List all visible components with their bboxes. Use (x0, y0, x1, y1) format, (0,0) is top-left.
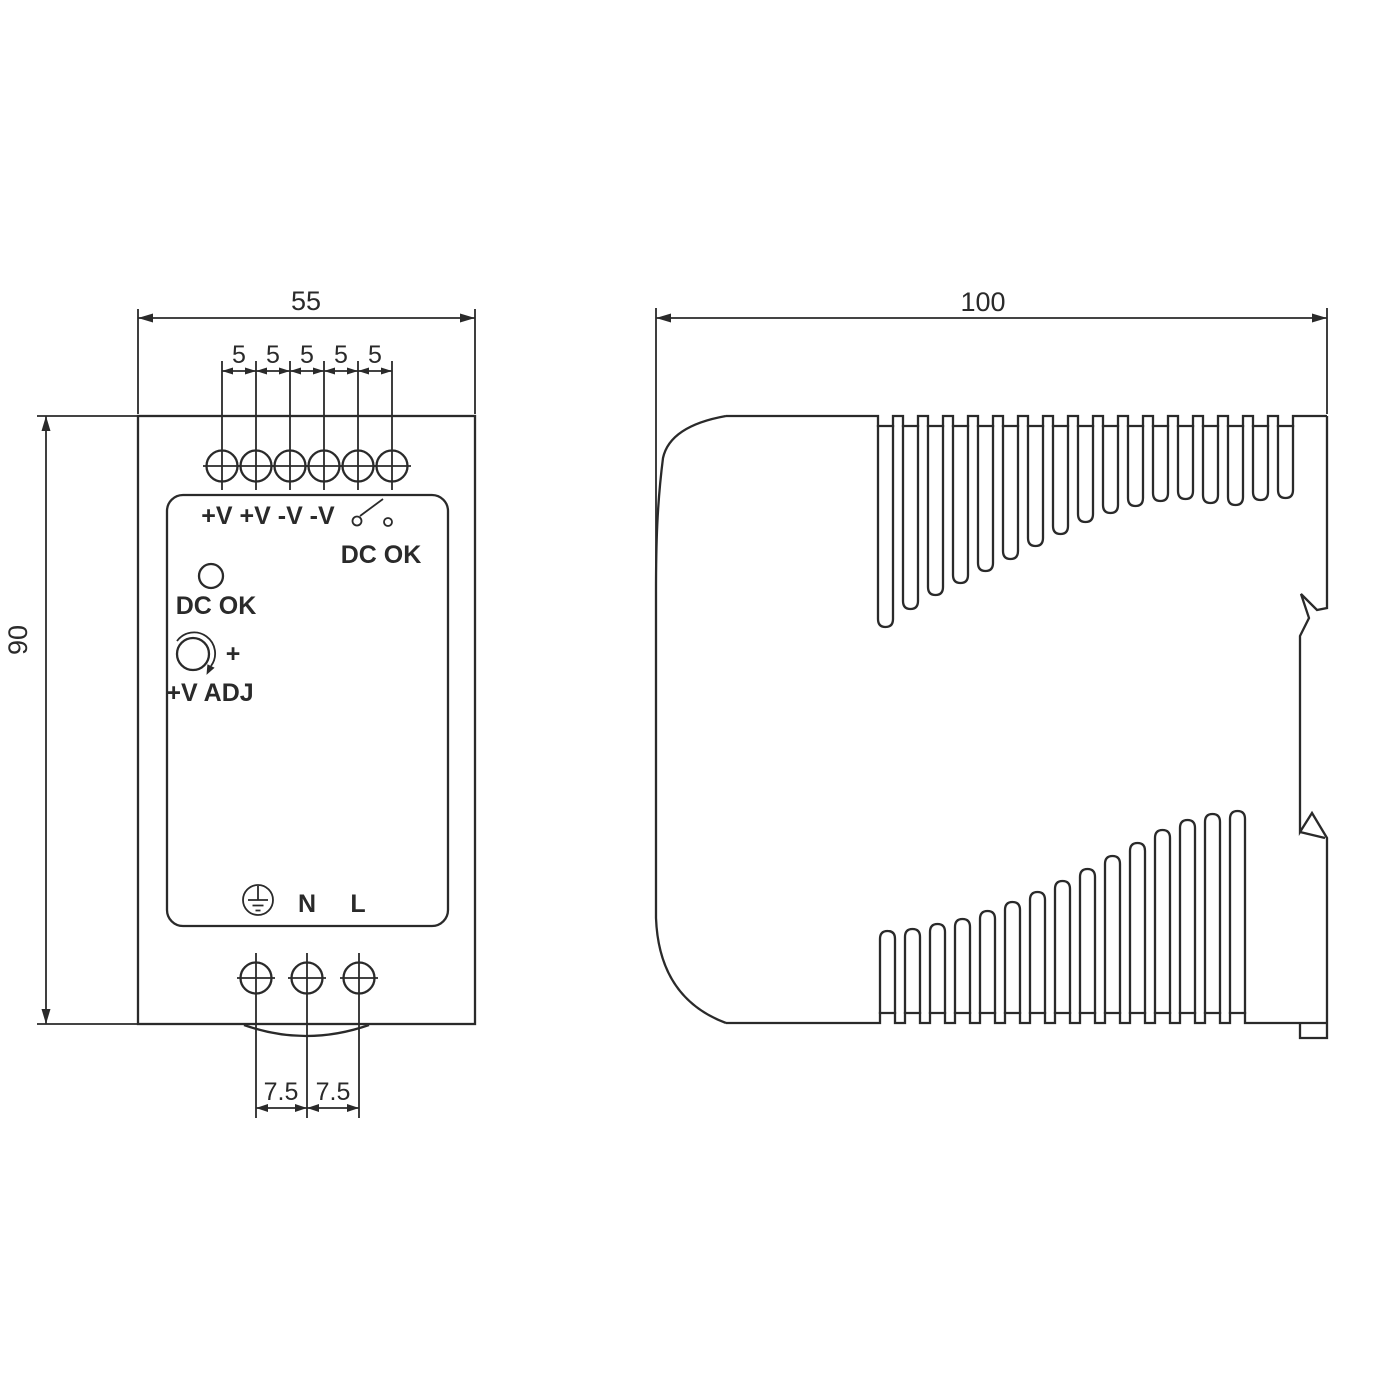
earth-bars (248, 886, 268, 911)
front-dim-height: 90 (3, 416, 148, 1024)
dim-arrow-left (138, 314, 153, 323)
screw-slot-and-extension-line (271, 361, 309, 490)
depth-dim-label: 100 (960, 287, 1005, 317)
dim-arrow-right (460, 314, 475, 323)
screw-slot-and-extension-line (305, 361, 343, 490)
din-clip-lower-hook-base (1300, 832, 1325, 838)
rotation-arrowhead-icon (207, 664, 215, 675)
pitch-dim-label: 5 (300, 341, 314, 369)
terminal-screw[interactable] (203, 361, 241, 490)
neutral-label: N (298, 890, 316, 918)
front-dim-pitch-top: 5 5 5 5 5 (222, 341, 392, 375)
side-bottom-edge (726, 1013, 1327, 1023)
side-dim-depth: 100 (656, 287, 1327, 592)
dim-arrow-left (656, 314, 671, 323)
output-terminals-label: +V +V -V -V (201, 502, 335, 530)
bottom-pitch-dim-label: 7.5 (316, 1078, 351, 1106)
relay-lever-icon (360, 499, 383, 516)
dim-arrowhead (313, 368, 324, 375)
pitch-dim-label: 5 (334, 341, 348, 369)
dim-arrowhead (279, 368, 290, 375)
bottom-vent-slots (880, 811, 1245, 1014)
dim-arrowhead (381, 368, 392, 375)
terminal-screw[interactable] (305, 361, 343, 490)
dim-arrowhead (347, 368, 358, 375)
terminal-screw[interactable] (373, 361, 411, 490)
width-dim-label: 55 (291, 286, 321, 316)
relay-label: DC OK (341, 541, 422, 569)
relay-contact-left-icon (353, 517, 362, 526)
front-panel: +V +V -V -V DC OK DC OK + +V ADJ (166, 495, 448, 926)
top-vent-slots (878, 425, 1293, 627)
dim-arrow-top (42, 416, 51, 431)
drawing-svg: 55 5 5 5 5 5 90 +V +V -V -V (0, 0, 1400, 1400)
dim-extension-lines (37, 416, 148, 1024)
dim-arrowhead (245, 368, 256, 375)
adj-label: +V ADJ (166, 679, 253, 707)
dc-ok-relay-symbol (353, 499, 393, 526)
bottom-foot-tab (1300, 1023, 1327, 1038)
potentiometer-icon[interactable] (177, 638, 209, 670)
terminal-screw[interactable] (237, 361, 275, 490)
bottom-pitch-dim-label: 7.5 (264, 1078, 299, 1106)
mechanical-drawing-canvas: 55 5 5 5 5 5 90 +V +V -V -V (0, 0, 1400, 1400)
side-left-edge (656, 416, 726, 1023)
relay-contact-right-icon (384, 518, 392, 526)
side-view: 100 (656, 287, 1327, 1038)
screw-slot-and-extension-line (339, 361, 377, 490)
dim-extension-lines (656, 308, 1327, 592)
led-label: DC OK (176, 592, 257, 620)
dim-arrow-right (1312, 314, 1327, 323)
terminal-screw[interactable] (339, 361, 377, 490)
screw-slot-and-extension-line (203, 361, 241, 490)
screw-slot-and-extension-line (373, 361, 411, 490)
side-right-edge-din-clip (1300, 416, 1327, 1023)
side-body (656, 416, 1327, 1038)
line-label: L (350, 890, 365, 918)
pitch-dim-label: 5 (368, 341, 382, 369)
front-view: 55 5 5 5 5 5 90 +V +V -V -V (3, 286, 475, 1118)
pitch-dim-label: 5 (266, 341, 280, 369)
adj-plus-label: + (226, 640, 241, 668)
protective-earth-icon (243, 885, 273, 915)
height-dim-label: 90 (3, 625, 33, 655)
side-top-edge (726, 416, 1327, 426)
dim-arrow-bottom (42, 1009, 51, 1024)
front-terminals-top (203, 361, 411, 490)
terminal-screw[interactable] (271, 361, 309, 490)
pitch-dim-label: 5 (232, 341, 246, 369)
dc-ok-led-icon (199, 564, 223, 588)
voltage-adjust-pot[interactable] (177, 632, 215, 675)
screw-slot-and-extension-line (237, 361, 275, 490)
